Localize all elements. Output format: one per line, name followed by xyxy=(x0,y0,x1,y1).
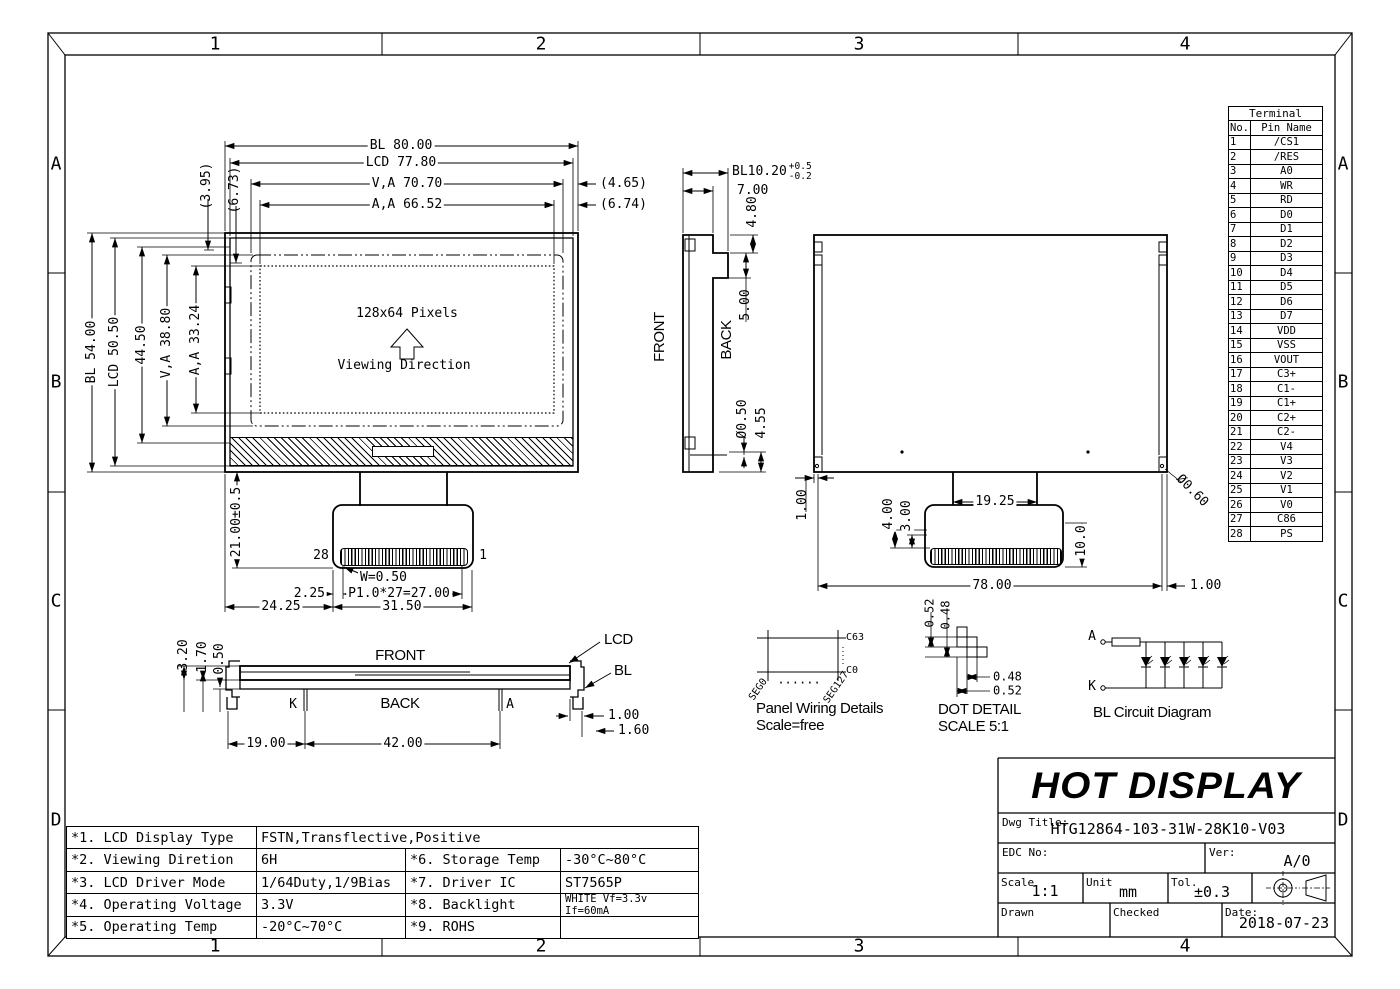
terminal-pin-name: D0 xyxy=(1251,208,1322,222)
terminal-pin-no: 7 xyxy=(1229,223,1251,237)
spec-value-9 xyxy=(560,917,698,938)
terminal-row: 28 PS xyxy=(1229,526,1322,541)
dim-500: 5.00 xyxy=(739,289,753,320)
spec-label-2: *2. Viewing Diretion xyxy=(67,849,256,870)
unit-value: mm xyxy=(1119,883,1137,901)
led-branches xyxy=(1141,642,1229,688)
terminal-col-no: No. xyxy=(1229,121,1251,135)
dim-4200: 42.00 xyxy=(381,737,424,751)
terminal-pin-name: V2 xyxy=(1251,469,1322,483)
tol-value: ±0.3 xyxy=(1194,883,1230,901)
terminal-pin-name: PS xyxy=(1251,527,1322,541)
spec-value-4: 3.3V xyxy=(256,894,405,915)
terminal-pin-no: 20 xyxy=(1229,411,1251,425)
spec-value-8: WHITE Vf=3.3v If=60mA xyxy=(560,894,698,915)
terminal-row: 2 /RES xyxy=(1229,149,1322,164)
scale-value: 1:1 xyxy=(1031,882,1058,900)
unit-label: Unit xyxy=(1086,876,1113,889)
terminal-table: Terminal No. Pin Name 1 /CS1 2 /RES 3 A0… xyxy=(1228,106,1323,542)
terminal-row: 6 D0 xyxy=(1229,207,1322,222)
terminal-pin-name: D1 xyxy=(1251,223,1322,237)
dim-400: 4.00 xyxy=(882,496,896,531)
terminal-pin-no: 14 xyxy=(1229,324,1251,338)
terminal-row: 11 D5 xyxy=(1229,280,1322,295)
terminal-pin-name: C3+ xyxy=(1251,368,1322,382)
spec-table: *1. LCD Display Type FSTN,Transflective,… xyxy=(66,826,699,939)
drawn-label: Drawn xyxy=(1001,906,1034,919)
terminal-pin-name: /RES xyxy=(1251,150,1322,164)
spec-row-4: *4. Operating Voltage 3.3V *8. Backlight… xyxy=(67,893,698,915)
dot-detail-title: DOT DETAIL xyxy=(938,702,1021,718)
spec-label-9: *9. ROHS xyxy=(405,917,560,938)
dwg-title-value: HTG12864-103-31W-28K10-V03 xyxy=(1051,820,1286,838)
spec-value-7: ST7565P xyxy=(560,872,698,893)
terminal-row: 21 C2- xyxy=(1229,425,1322,440)
dim-10: 10.0 xyxy=(1075,523,1089,558)
terminal-pin-no: 8 xyxy=(1229,237,1251,251)
terminal-pin-name: V4 xyxy=(1251,440,1322,454)
terminal-pin-name: V3 xyxy=(1251,455,1322,469)
grid-row-d-left: D xyxy=(51,810,62,831)
dim-4450: 44.50 xyxy=(135,323,149,366)
dim-va-width: V,A 70.70 xyxy=(370,177,444,191)
tol-minus: -0.2 xyxy=(789,172,812,182)
terminal-table-header: No. Pin Name xyxy=(1229,120,1322,135)
viewing-direction-label: Viewing Direction xyxy=(337,359,470,373)
dim-320: 3.20 xyxy=(177,639,191,670)
terminal-pin-no: 13 xyxy=(1229,310,1251,324)
terminal-row: 14 VDD xyxy=(1229,323,1322,338)
backlight-slot xyxy=(372,446,434,457)
dim-673: (6.73) xyxy=(228,167,242,214)
checked-label: Checked xyxy=(1113,906,1159,919)
dim-1925: 19.25 xyxy=(973,495,1016,509)
terminal-pin-name: V1 xyxy=(1251,484,1322,498)
grid-row-b-right: B xyxy=(1338,372,1349,393)
terminal-table-title: Terminal xyxy=(1229,107,1322,120)
terminal-pin-name: D2 xyxy=(1251,237,1322,251)
scale-label: Scale xyxy=(1001,876,1034,889)
dot-dim-v052: 0.52 xyxy=(924,599,937,628)
terminal-row: 1 /CS1 xyxy=(1229,135,1322,150)
bl-anode-label: A xyxy=(1088,630,1096,644)
terminal-pin-no: 24 xyxy=(1229,469,1251,483)
spec-row-1: *1. LCD Display Type FSTN,Transflective,… xyxy=(67,827,698,848)
grid-row-a-left: A xyxy=(51,154,62,175)
dim-100-section: 1.00 xyxy=(608,709,639,723)
dim-100-left: 1.00 xyxy=(796,489,810,520)
dim-bl-width: BL 80.00 xyxy=(368,139,435,153)
spec-label-4: *4. Operating Voltage xyxy=(67,894,256,915)
seg-dots: ...... xyxy=(777,674,820,687)
grid-col-3-bottom: 3 xyxy=(854,936,865,957)
terminal-pin-name: D5 xyxy=(1251,281,1322,295)
section-front-label: FRONT xyxy=(375,648,425,664)
dim-3150: 31.50 xyxy=(380,600,423,614)
dim-674: (6.74) xyxy=(600,198,647,212)
dim-465: (4.65) xyxy=(600,177,647,191)
edc-no-label: EDC No: xyxy=(1002,846,1048,859)
dim-160-section: 1.60 xyxy=(618,724,649,738)
terminal-pin-no: 12 xyxy=(1229,295,1251,309)
side-front-label: FRONT xyxy=(652,312,668,362)
terminal-pin-no: 25 xyxy=(1229,484,1251,498)
terminal-row: 19 C1+ xyxy=(1229,396,1322,411)
terminal-pin-name: C2+ xyxy=(1251,411,1322,425)
cathode-label: K xyxy=(289,698,297,712)
grid-row-c-right: C xyxy=(1338,591,1349,612)
terminal-col-name: Pin Name xyxy=(1251,121,1322,135)
dim-1900: 19.00 xyxy=(244,737,287,751)
dim-dia-050: Ø0.50 xyxy=(736,399,750,438)
terminal-row: 17 C3+ xyxy=(1229,367,1322,382)
pin-1-label: 1 xyxy=(479,549,487,563)
terminal-pin-name: /CS1 xyxy=(1251,136,1322,150)
terminal-row: 16 VOUT xyxy=(1229,352,1322,367)
side-back-label: BACK xyxy=(719,320,735,359)
terminal-row: 12 D6 xyxy=(1229,294,1322,309)
terminal-pin-no: 23 xyxy=(1229,455,1251,469)
bl-circuit-linework xyxy=(1101,638,1229,690)
spec-label-1: *1. LCD Display Type xyxy=(67,827,256,848)
dim-bl-height: BL 54.00 xyxy=(85,319,99,386)
spec-row-5: *5. Operating Temp -20°C~70°C *9. ROHS xyxy=(67,916,698,938)
terminal-pin-name: C1- xyxy=(1251,382,1322,396)
terminal-row: 27 C86 xyxy=(1229,512,1322,527)
dot-dim-v048: 0.48 xyxy=(940,601,953,630)
terminal-row: 9 D3 xyxy=(1229,251,1322,266)
grid-col-3-top: 3 xyxy=(854,34,865,55)
section-back-label: BACK xyxy=(380,696,419,712)
pin-28-label: 28 xyxy=(313,549,329,563)
terminal-pin-no: 18 xyxy=(1229,382,1251,396)
spec-label-6: *6. Storage Temp xyxy=(405,849,560,870)
spec-value-5: -20°C~70°C xyxy=(256,917,405,938)
dim-7800: 78.00 xyxy=(970,579,1013,593)
lcd-callout: LCD xyxy=(604,632,633,648)
terminal-row: 26 V0 xyxy=(1229,497,1322,512)
projection-symbol-icon xyxy=(1266,871,1330,905)
anode-label: A xyxy=(506,698,514,712)
grid-col-2-top: 2 xyxy=(536,34,547,55)
dim-aa-width: A,A 66.52 xyxy=(370,198,444,212)
terminal-pin-no: 26 xyxy=(1229,498,1251,512)
spec-label-7: *7. Driver IC xyxy=(405,872,560,893)
spec-value-2: 6H xyxy=(256,849,405,870)
spec-value-6: -30°C~80°C xyxy=(560,849,698,870)
terminal-pin-no: 4 xyxy=(1229,179,1251,193)
company-logo-text: HOT DISPLAY xyxy=(1031,765,1301,807)
spec-label-8: *8. Backlight xyxy=(405,894,560,915)
spec-value-3: 1/64Duty,1/9Bias xyxy=(256,872,405,893)
terminal-row: 13 D7 xyxy=(1229,309,1322,324)
dim-480: 4.80 xyxy=(746,196,760,227)
dot-detail-scale: SCALE 5:1 xyxy=(938,719,1009,735)
panel-wiring-title: Panel Wiring Details xyxy=(756,701,883,717)
terminal-row: 4 WR xyxy=(1229,178,1322,193)
dim-455: 4.55 xyxy=(755,407,769,438)
terminal-pin-name: D6 xyxy=(1251,295,1322,309)
spec-row-2: *2. Viewing Diretion 6H *6. Storage Temp… xyxy=(67,848,698,870)
dim-lcd-width: LCD 77.80 xyxy=(364,156,438,170)
date-value: 2018-07-23 xyxy=(1239,914,1329,932)
terminal-row: 8 D2 xyxy=(1229,236,1322,251)
dim-100-right: 1.00 xyxy=(1190,579,1221,593)
terminal-pin-name: RD xyxy=(1251,194,1322,208)
terminal-pin-name: C2- xyxy=(1251,426,1322,440)
terminal-pin-no: 9 xyxy=(1229,252,1251,266)
terminal-row: 22 V4 xyxy=(1229,439,1322,454)
bl-cathode-label: K xyxy=(1088,680,1096,694)
pixels-label: 128x64 Pixels xyxy=(356,307,458,321)
dim-2425: 24.25 xyxy=(259,600,302,614)
dim-bl-thickness: BL10.20+0.5-0.2 xyxy=(732,162,812,182)
terminal-pin-no: 27 xyxy=(1229,513,1251,527)
grid-row-d-right: D xyxy=(1338,810,1349,831)
dim-tail-length: 21.00±0.5 xyxy=(230,485,244,559)
terminal-pin-no: 28 xyxy=(1229,527,1251,541)
terminal-table-body: 1 /CS1 2 /RES 3 A0 4 WR 5 RD 6 D0 7 D1 8… xyxy=(1229,135,1322,541)
terminal-pin-name: D7 xyxy=(1251,310,1322,324)
terminal-row: 3 A0 xyxy=(1229,164,1322,179)
grid-row-c-left: C xyxy=(51,591,62,612)
terminal-pin-name: VDD xyxy=(1251,324,1322,338)
terminal-pin-name: VSS xyxy=(1251,339,1322,353)
dim-finger-width: W=0.50 xyxy=(358,571,409,585)
terminal-pin-name: C1+ xyxy=(1251,397,1322,411)
terminal-pin-no: 3 xyxy=(1229,165,1251,179)
terminal-pin-no: 19 xyxy=(1229,397,1251,411)
dim-bl-thickness-value: BL10.20 xyxy=(732,165,787,179)
dim-300: 3.00 xyxy=(900,498,914,533)
dot-dim-h048: 0.48 xyxy=(993,671,1022,684)
terminal-row: 10 D4 xyxy=(1229,265,1322,280)
spec-row-3: *3. LCD Driver Mode 1/64Duty,1/9Bias *7.… xyxy=(67,871,698,893)
grid-col-4-top: 4 xyxy=(1180,34,1191,55)
fpc-fingers-back xyxy=(930,548,1062,565)
terminal-pin-no: 21 xyxy=(1229,426,1251,440)
terminal-pin-name: WR xyxy=(1251,179,1322,193)
terminal-pin-no: 16 xyxy=(1229,353,1251,367)
bl-callout: BL xyxy=(614,663,632,679)
terminal-row: 15 VSS xyxy=(1229,338,1322,353)
terminal-row: 5 RD xyxy=(1229,193,1322,208)
terminal-pin-no: 2 xyxy=(1229,150,1251,164)
terminal-row: 24 V2 xyxy=(1229,468,1322,483)
dim-170: 1.70 xyxy=(196,641,210,672)
terminal-pin-no: 11 xyxy=(1229,281,1251,295)
terminal-row: 20 C2+ xyxy=(1229,410,1322,425)
grid-col-4-bottom: 4 xyxy=(1180,936,1191,957)
terminal-pin-name: V0 xyxy=(1251,498,1322,512)
grid-row-a-right: A xyxy=(1338,154,1349,175)
terminal-pin-no: 10 xyxy=(1229,266,1251,280)
terminal-row: 23 V3 xyxy=(1229,454,1322,469)
tolerance-stack: +0.5-0.2 xyxy=(789,162,812,182)
terminal-pin-no: 15 xyxy=(1229,339,1251,353)
spec-label-5: *5. Operating Temp xyxy=(67,917,256,938)
terminal-pin-name: A0 xyxy=(1251,165,1322,179)
terminal-pin-no: 6 xyxy=(1229,208,1251,222)
dim-lcd-height: LCD 50.50 xyxy=(108,315,122,389)
dim-050: 0.50 xyxy=(213,643,227,674)
terminal-row: 7 D1 xyxy=(1229,222,1322,237)
terminal-row: 18 C1- xyxy=(1229,381,1322,396)
ver-label: Ver: xyxy=(1209,846,1236,859)
spec-label-3: *3. LCD Driver Mode xyxy=(67,872,256,893)
terminal-pin-name: D3 xyxy=(1251,252,1322,266)
terminal-pin-name: C86 xyxy=(1251,513,1322,527)
drawing-sheet: 1 2 3 4 1 2 3 4 A B C D A B C D BL 80.00… xyxy=(0,0,1400,989)
dim-395: (3.95) xyxy=(200,163,214,210)
terminal-pin-no: 17 xyxy=(1229,368,1251,382)
dim-va-height: V,A 38.80 xyxy=(160,306,174,380)
com63-label: C63 xyxy=(846,633,864,644)
terminal-pin-no: 22 xyxy=(1229,440,1251,454)
grid-col-1-top: 1 xyxy=(210,34,221,55)
terminal-pin-name: D4 xyxy=(1251,266,1322,280)
dot-dim-h052: 0.52 xyxy=(993,685,1022,698)
back-view-linework xyxy=(795,235,1185,591)
terminal-pin-name: VOUT xyxy=(1251,353,1322,367)
dim-aa-height: A,A 33.24 xyxy=(189,303,203,377)
fpc-fingers-front xyxy=(340,548,468,566)
grid-row-b-left: B xyxy=(51,372,62,393)
panel-wiring-scale: Scale=free xyxy=(756,718,824,734)
terminal-pin-no: 1 xyxy=(1229,136,1251,150)
terminal-row: 25 V1 xyxy=(1229,483,1322,498)
ver-value: A/0 xyxy=(1283,852,1310,870)
terminal-pin-no: 5 xyxy=(1229,194,1251,208)
spec-value-1: FSTN,Transflective,Positive xyxy=(256,827,698,848)
bl-circuit-title: BL Circuit Diagram xyxy=(1093,705,1211,721)
